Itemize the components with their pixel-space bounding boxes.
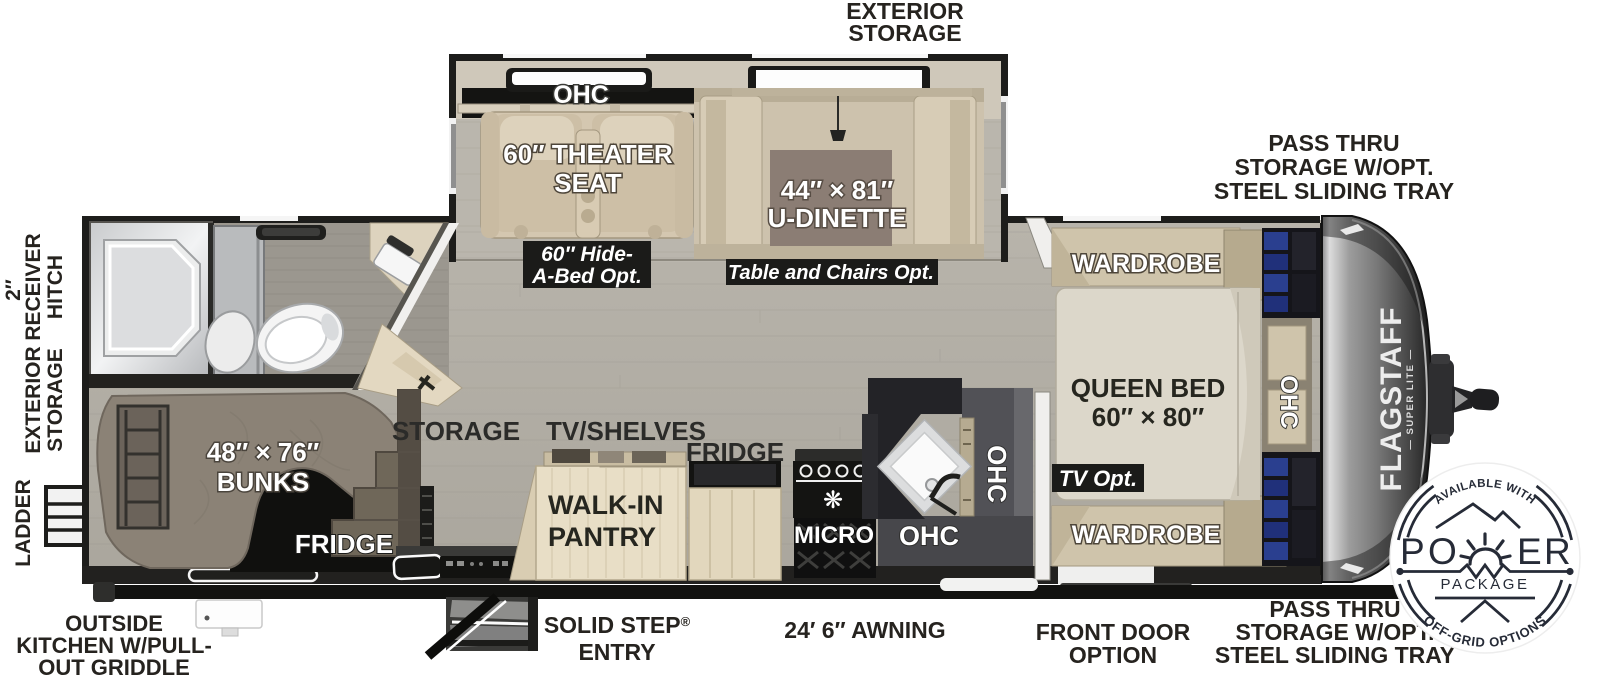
svg-text:LADDER: LADDER [12, 479, 35, 567]
svg-text:60″ Hide-: 60″ Hide- [541, 243, 633, 266]
svg-text:WARDROBE: WARDROBE [1072, 250, 1221, 278]
svg-text:QUEEN BED: QUEEN BED [1071, 373, 1226, 403]
svg-text:STORAGE: STORAGE [392, 416, 520, 446]
svg-text:STORAGE: STORAGE [44, 348, 67, 451]
svg-text:48″ × 76″: 48″ × 76″ [207, 437, 319, 467]
svg-text:OHC: OHC [1275, 375, 1302, 428]
svg-text:FLAGSTAFF: FLAGSTAFF [1375, 306, 1408, 491]
svg-text:WALK-IN: WALK-IN [548, 490, 663, 520]
svg-text:— SUPER LITE —: — SUPER LITE — [1405, 348, 1416, 449]
svg-text:PACKAGE: PACKAGE [1441, 576, 1530, 593]
svg-text:RECEIVER: RECEIVER [22, 233, 45, 340]
svg-text:Table and Chairs Opt.: Table and Chairs Opt. [728, 262, 934, 284]
svg-text:24′ 6″ AWNING: 24′ 6″ AWNING [784, 617, 945, 643]
svg-text:STEEL SLIDING TRAY: STEEL SLIDING TRAY [1214, 178, 1454, 204]
svg-text:SEAT: SEAT [554, 168, 622, 198]
svg-text:MICRO: MICRO [794, 522, 874, 549]
svg-text:PASS THRU: PASS THRU [1268, 130, 1399, 156]
svg-text:TV Opt.: TV Opt. [1059, 466, 1137, 491]
svg-text:STORAGE: STORAGE [848, 20, 961, 46]
svg-text:E: E [1517, 531, 1542, 572]
svg-text:60″ THEATER: 60″ THEATER [503, 139, 673, 169]
svg-text:ENTRY: ENTRY [578, 639, 655, 665]
svg-text:WARDROBE: WARDROBE [1072, 521, 1221, 549]
svg-text:OHC: OHC [899, 521, 959, 551]
svg-text:A-Bed Opt.: A-Bed Opt. [531, 265, 642, 288]
svg-text:OHC: OHC [553, 81, 609, 109]
svg-text:TV/SHELVES: TV/SHELVES [546, 416, 706, 446]
svg-text:STORAGE W/OPT.: STORAGE W/OPT. [1235, 154, 1434, 180]
svg-text:U-DINETTE: U-DINETTE [768, 203, 907, 233]
svg-text:60″ × 80″: 60″ × 80″ [1092, 402, 1204, 432]
svg-text:R: R [1544, 531, 1571, 572]
svg-text:P: P [1400, 531, 1425, 572]
svg-text:OHC: OHC [982, 445, 1012, 503]
svg-text:SOLID STEP®: SOLID STEP® [544, 612, 691, 638]
svg-text:O: O [1428, 531, 1457, 572]
svg-text:HITCH: HITCH [44, 255, 67, 319]
svg-text:EXTERIOR: EXTERIOR [22, 346, 45, 453]
svg-text:FRIDGE: FRIDGE [295, 529, 393, 559]
svg-text:BUNKS: BUNKS [217, 467, 309, 497]
svg-text:PANTRY: PANTRY [548, 522, 656, 552]
svg-text:OPTION: OPTION [1069, 642, 1157, 668]
svg-text:STEEL SLIDING TRAY: STEEL SLIDING TRAY [1215, 642, 1455, 668]
svg-text:FRIDGE: FRIDGE [686, 437, 784, 467]
svg-text:❋: ❋ [823, 487, 843, 514]
svg-text:44″ × 81″: 44″ × 81″ [781, 175, 893, 205]
svg-text:OUT GRIDDLE: OUT GRIDDLE [38, 655, 190, 679]
